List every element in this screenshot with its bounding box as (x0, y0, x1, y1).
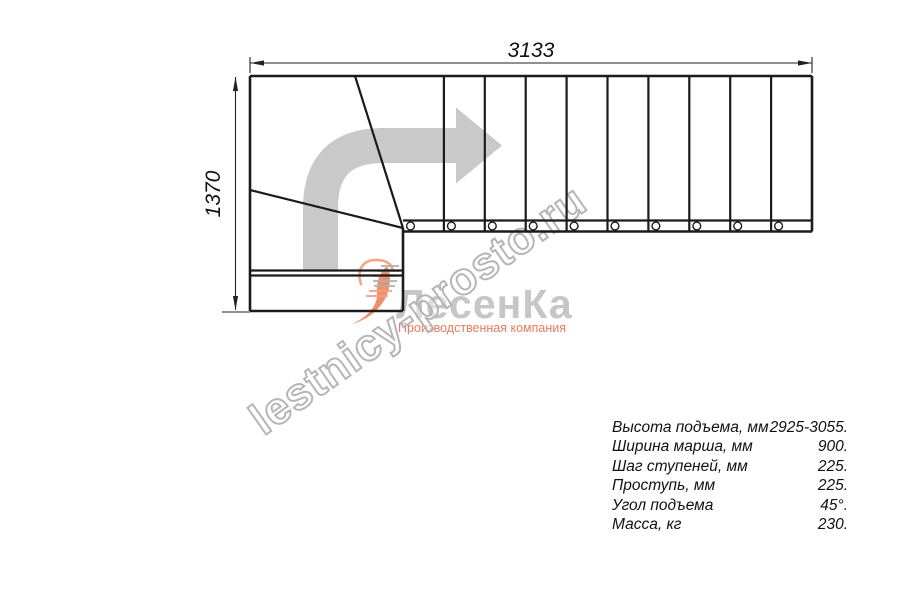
winder-line-2 (250, 190, 403, 228)
staircase-drawing-page: ЛесенКа Производственная компания lestni… (0, 0, 900, 600)
spec-row-step-pitch: Шаг ступеней, мм 225. (612, 457, 848, 476)
step-lines (250, 76, 812, 276)
spec-value: 225. (818, 457, 848, 476)
spec-label: Угол подъема (612, 496, 713, 515)
spec-value: 45°. (820, 496, 848, 515)
width-dimension-label: 3133 (508, 39, 555, 62)
spec-value: 900. (818, 437, 848, 456)
spec-row-tread: Проступь, мм 225. (612, 476, 848, 495)
height-dimension: 1370 (202, 77, 250, 312)
spec-label: Шаг ступеней, мм (612, 457, 748, 476)
spec-value: 230. (818, 515, 848, 534)
width-dimension: 3133 (250, 39, 812, 73)
spec-row-width: Ширина марша, мм 900. (612, 437, 848, 456)
spec-row-mass: Масса, кг 230. (612, 515, 848, 534)
spec-row-height: Высота подъема, мм 2925-3055. (612, 418, 848, 437)
spec-label: Масса, кг (612, 515, 681, 534)
spec-value: 225. (818, 476, 848, 495)
spec-table: Высота подъема, мм 2925-3055. Ширина мар… (612, 418, 848, 534)
spec-label: Ширина марша, мм (612, 437, 753, 456)
spec-label: Проступь, мм (612, 476, 715, 495)
spec-label: Высота подъема, мм (612, 418, 769, 437)
winder-line-1 (355, 76, 403, 228)
spec-row-angle: Угол подъема 45°. (612, 496, 848, 515)
baluster-markers (407, 222, 783, 230)
spec-value: 2925-3055. (770, 418, 848, 437)
height-dimension-label: 1370 (202, 170, 225, 217)
